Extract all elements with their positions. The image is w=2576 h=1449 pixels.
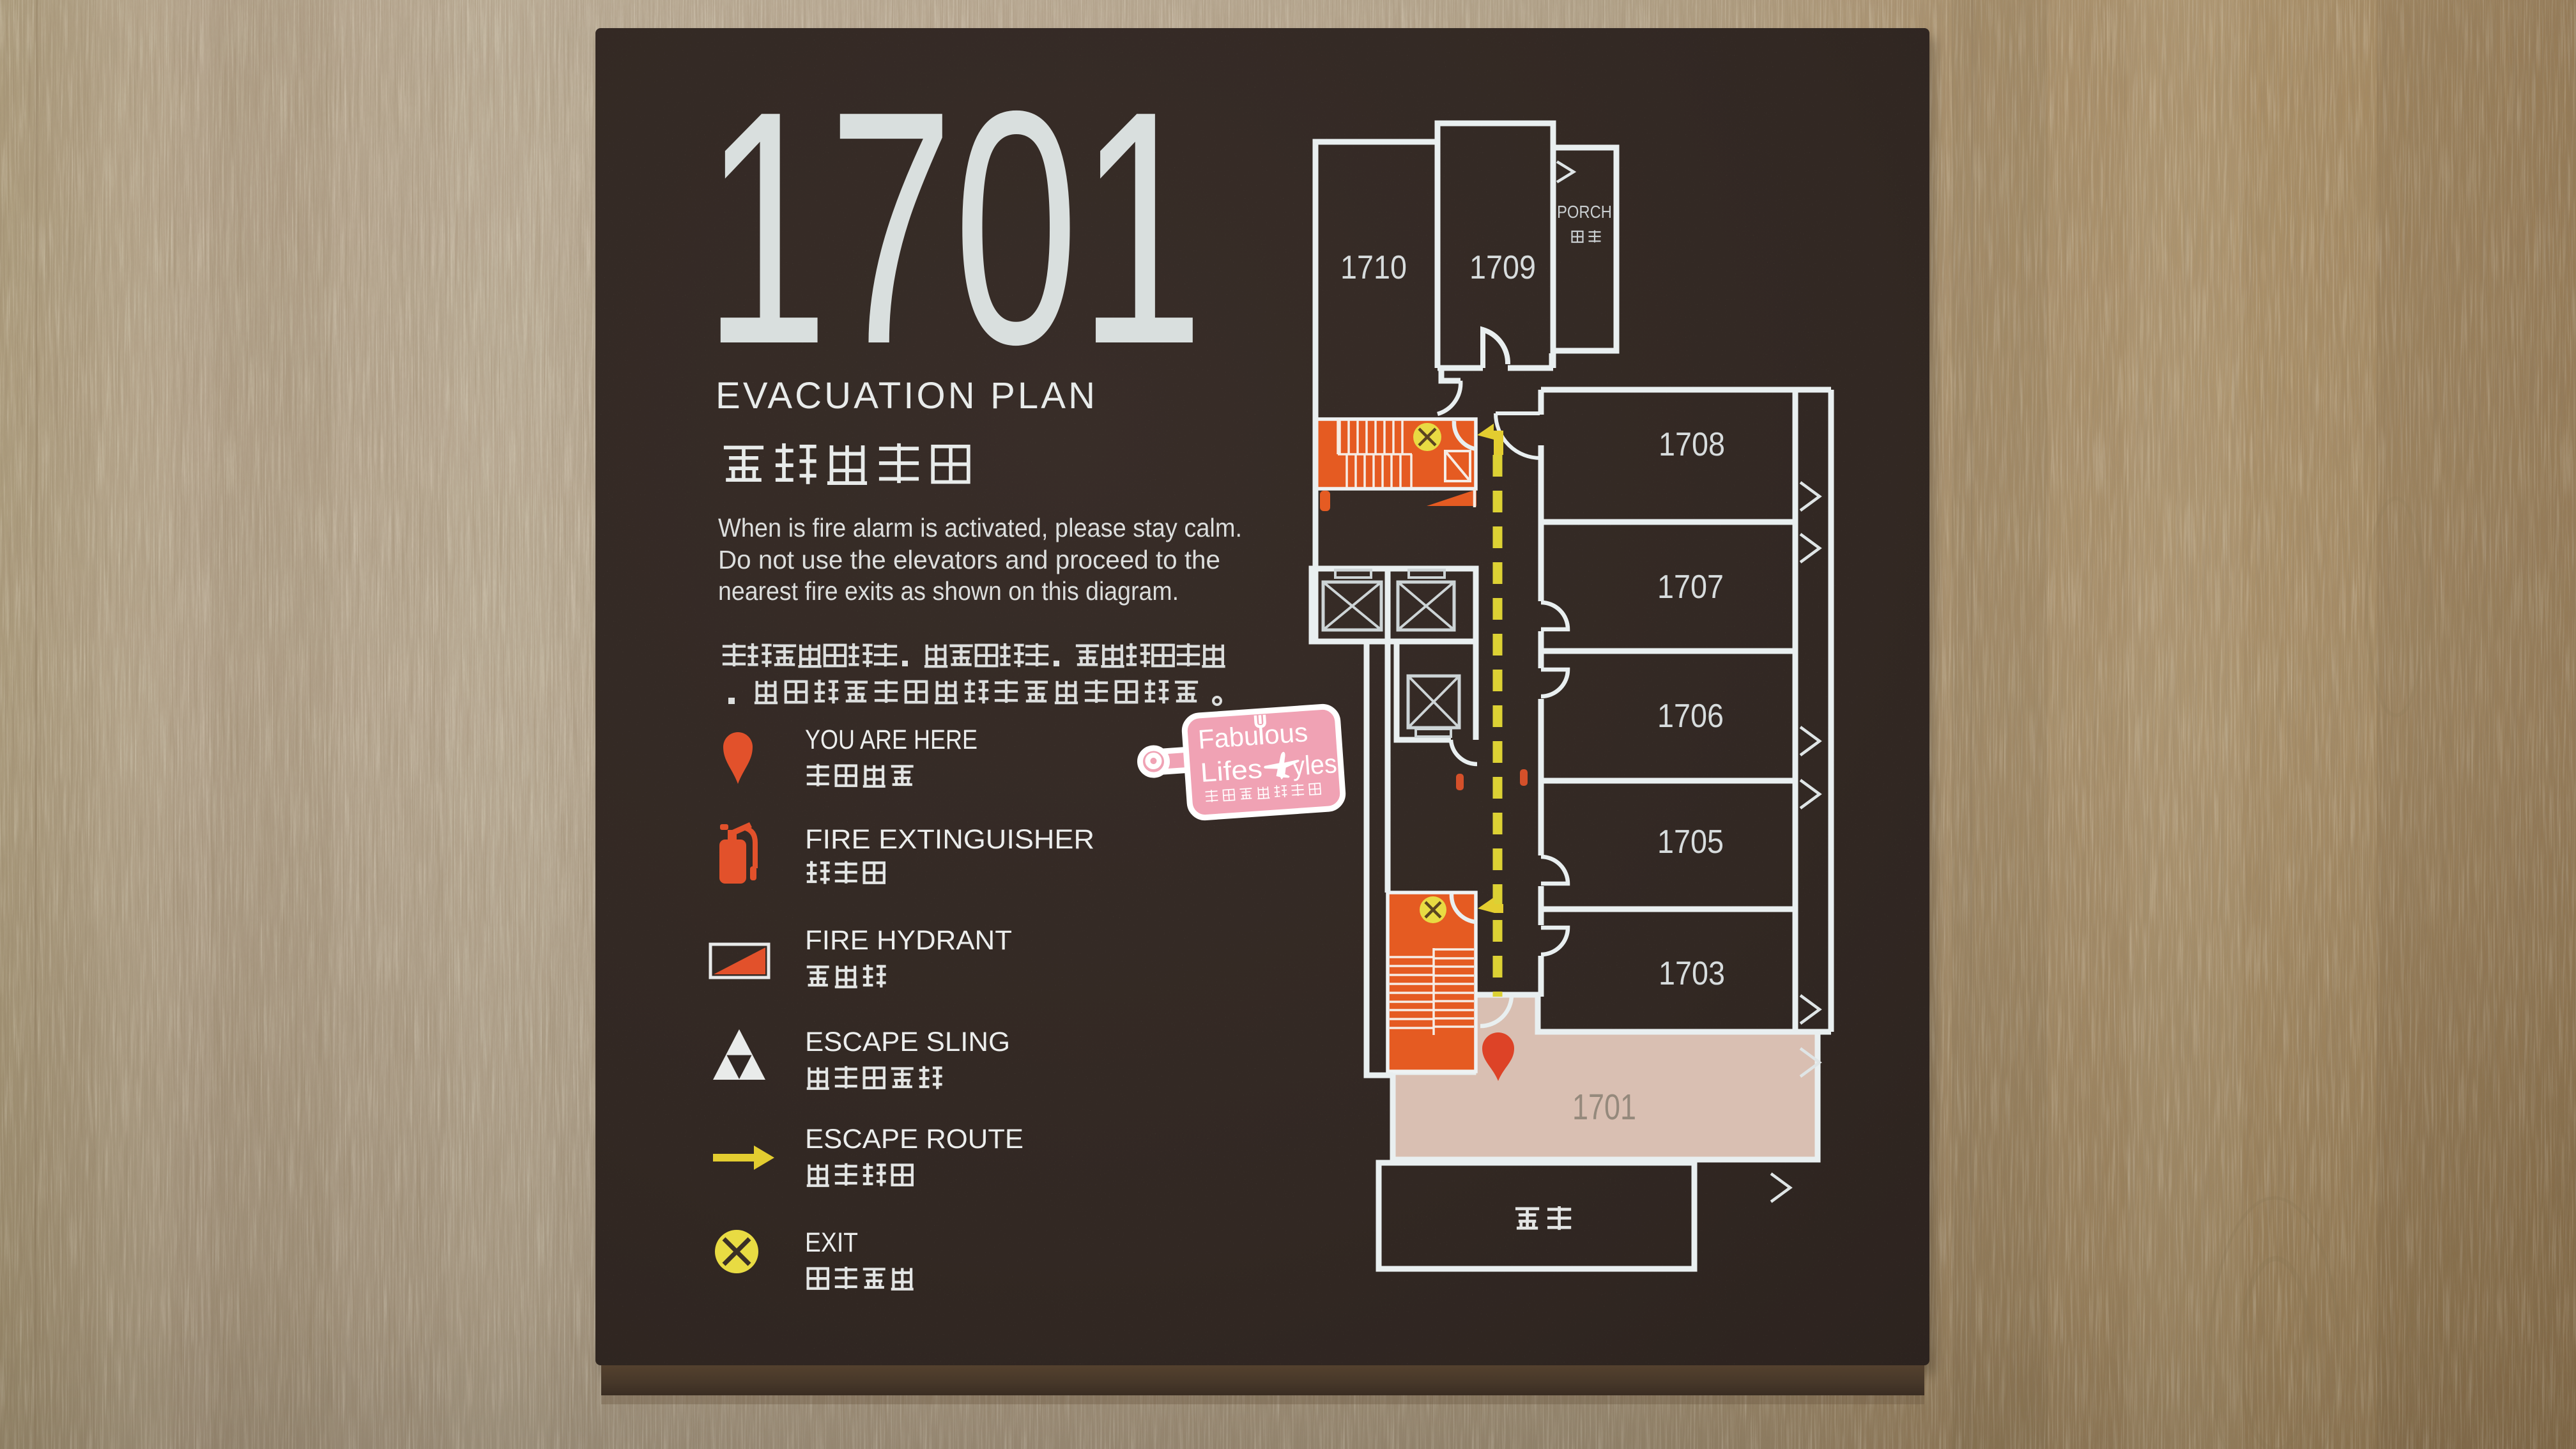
svg-text:YOU ARE HERE: YOU ARE HERE (805, 724, 977, 755)
svg-text:1703: 1703 (1659, 955, 1725, 992)
svg-text:ous: ous (1263, 717, 1308, 750)
svg-text:EVACUATION PLAN: EVACUATION PLAN (716, 375, 1095, 417)
svg-text:1706: 1706 (1657, 698, 1724, 735)
svg-text:ESCAPE ROUTE: ESCAPE ROUTE (805, 1124, 1023, 1154)
svg-text:Fabu: Fabu (1197, 721, 1260, 755)
svg-text:1708: 1708 (1659, 426, 1725, 463)
svg-text:Do not use the elevators and p: Do not use the elevators and proceed to … (718, 545, 1220, 574)
svg-text:PORCH: PORCH (1557, 202, 1612, 222)
svg-text:1707: 1707 (1657, 569, 1724, 606)
svg-text:yles: yles (1291, 748, 1338, 781)
svg-text:nearest fire exits as shown on: nearest fire exits as shown on this diag… (718, 576, 1179, 606)
svg-text:ESCAPE SLING: ESCAPE SLING (805, 1027, 1010, 1057)
svg-text:1710: 1710 (1340, 249, 1407, 286)
svg-text:1705: 1705 (1657, 824, 1724, 861)
svg-text:FIRE HYDRANT: FIRE HYDRANT (805, 925, 1012, 956)
svg-text:FIRE EXTINGUISHER: FIRE EXTINGUISHER (805, 824, 1094, 855)
svg-text:Lifes: Lifes (1199, 753, 1263, 788)
svg-text:When is fire alarm is activate: When is fire alarm is activated, please … (718, 513, 1242, 542)
svg-text:1701: 1701 (703, 42, 1204, 413)
svg-text:EXIT: EXIT (805, 1227, 858, 1258)
svg-text:1709: 1709 (1469, 249, 1536, 286)
svg-text:1701: 1701 (1572, 1087, 1636, 1128)
